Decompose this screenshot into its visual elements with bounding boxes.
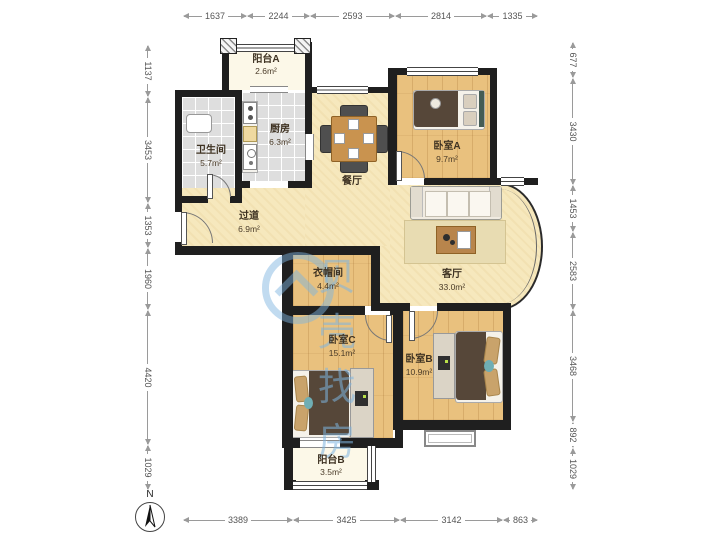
room-area-hallway: 6.9m²	[219, 224, 279, 234]
dim-bottom-4: 863	[503, 514, 538, 526]
room-label-bedroom-c: 卧室C	[312, 335, 372, 346]
dim-left-1: 1137	[142, 45, 154, 97]
bathtub	[186, 114, 212, 133]
bedroom-b-door-leaf	[409, 311, 415, 341]
sink-icon	[243, 144, 257, 170]
dim-right-6: 892	[567, 422, 579, 448]
dim-left-4: 1960	[142, 248, 154, 310]
floor-plan-canvas: 阳台A 2.6m² 厨房 6.3m² 卫生间 5.7m² 卧室A 9.7m² 餐…	[0, 0, 720, 540]
room-label-kitchen: 厨房	[250, 124, 310, 135]
balcony-b-opening	[300, 440, 340, 448]
wardrobe-bedroom-b	[433, 333, 455, 399]
compass-n-label: N	[134, 489, 166, 501]
ac-platform	[424, 430, 476, 447]
room-label-bedroom-a: 卧室A	[417, 141, 477, 152]
room-label-living: 客厅	[422, 269, 482, 280]
dim-right-2: 3430	[567, 78, 579, 185]
room-label-cloakroom: 衣帽间	[298, 268, 358, 279]
entry-door-leaf	[181, 212, 187, 245]
dim-right-1: 677	[567, 42, 579, 78]
room-label-balcony-a: 阳台A	[236, 54, 296, 65]
room-area-bedroom-c: 15.1m²	[312, 348, 372, 358]
room-area-kitchen: 6.3m²	[250, 137, 310, 147]
dim-left-3: 1353	[142, 203, 154, 248]
room-area-balcony-a: 2.6m²	[236, 66, 296, 76]
window-dining	[317, 86, 368, 94]
wardrobe-bedroom-c	[350, 368, 374, 438]
dim-top-2: 2244	[247, 10, 310, 22]
pillar-hatch	[220, 38, 237, 54]
bathroom-door-leaf	[207, 174, 213, 199]
dim-top-4: 2814	[395, 10, 487, 22]
room-label-bedroom-b: 卧室B	[389, 354, 449, 365]
dim-right-5: 3468	[567, 310, 579, 422]
dim-bottom-1: 3389	[183, 514, 293, 526]
window-bedroom-a	[407, 67, 478, 76]
room-area-bathroom: 5.7m²	[181, 158, 241, 168]
bed-bedroom-a	[413, 90, 485, 130]
coffee-table	[436, 226, 476, 254]
room-area-living: 33.0m²	[422, 282, 482, 292]
stove-icon	[243, 102, 257, 124]
compass-ring	[135, 502, 165, 532]
dim-left-5: 4420	[142, 310, 154, 445]
bedroom-a-door-leaf	[396, 151, 402, 181]
room-area-bedroom-b: 10.9m²	[389, 367, 449, 377]
room-area-cloakroom: 4.4m²	[298, 281, 358, 291]
window-balcony-b-bottom	[293, 481, 367, 490]
room-label-hallway: 过道	[219, 211, 279, 222]
room-area-bedroom-a: 9.7m²	[417, 154, 477, 164]
window-living	[501, 177, 524, 186]
bedroom-c-door-leaf	[386, 315, 392, 343]
dim-top-5: 1335	[487, 10, 538, 22]
room-label-bathroom: 卫生间	[181, 145, 241, 156]
compass-needle	[136, 503, 164, 531]
dim-right-3: 1453	[567, 185, 579, 232]
bed-bedroom-c	[291, 370, 351, 438]
bed-bedroom-b	[455, 331, 503, 403]
dim-left-6: 1029	[142, 445, 154, 490]
dim-bottom-3: 3142	[400, 514, 503, 526]
dim-top-3: 2593	[310, 10, 395, 22]
dim-right-7: 1029	[567, 448, 579, 490]
pillar-hatch	[294, 38, 311, 54]
balcony-a-opening	[250, 86, 288, 93]
sofa	[410, 186, 502, 220]
room-label-dining: 餐厅	[322, 176, 382, 187]
room-area-balcony-b: 3.5m²	[301, 467, 361, 477]
window-balcony-b-right	[367, 446, 376, 482]
dining-table	[331, 116, 377, 162]
dim-right-4: 2583	[567, 232, 579, 310]
dim-top-1: 1637	[183, 10, 247, 22]
compass-north-icon: N	[134, 489, 166, 532]
dim-left-2: 3453	[142, 97, 154, 203]
room-label-balcony-b: 阳台B	[301, 455, 361, 466]
dim-bottom-2: 3425	[293, 514, 400, 526]
